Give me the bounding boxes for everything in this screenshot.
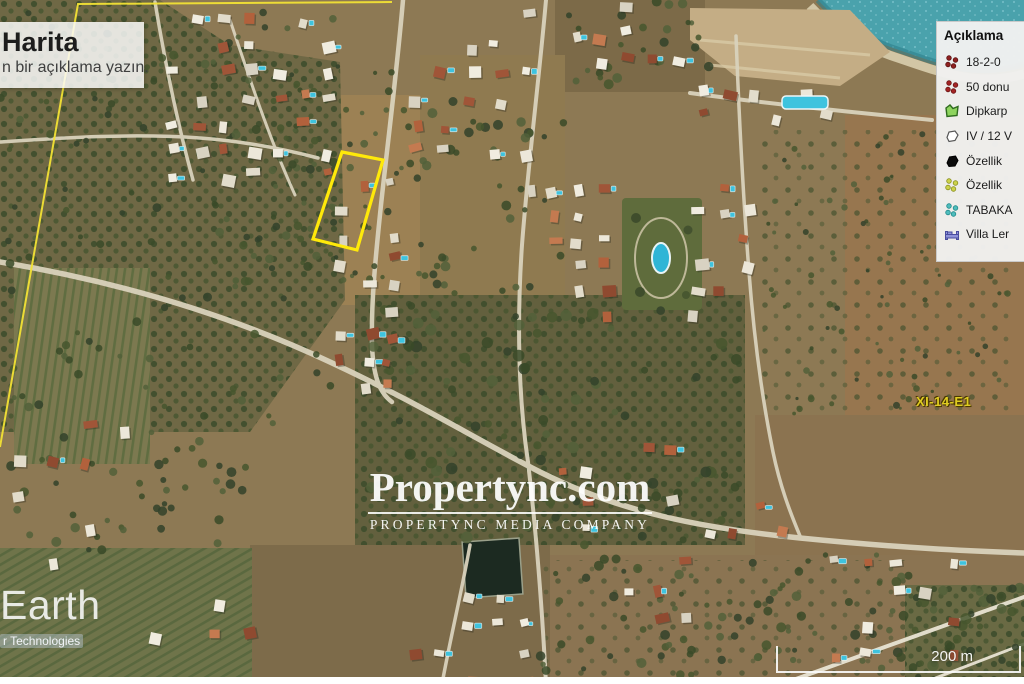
green-polygon-icon xyxy=(944,103,960,119)
legend-panel: Açıklama 18-2-0 50 donuDipkarpIV / 12 VÖ… xyxy=(936,21,1024,262)
scale-bar-label: 200 m xyxy=(931,648,973,665)
legend-item-0[interactable]: 18-2-0 xyxy=(944,50,1024,75)
cluster-dots-icon xyxy=(944,202,960,218)
legend-item-label: Villa Ler xyxy=(966,227,1009,241)
map-subtitle: n bir açıklama yazın. xyxy=(2,59,138,77)
parcel-code-label: XI-14-E1 xyxy=(916,394,971,409)
legend-item-4[interactable]: Özellik xyxy=(944,148,1024,173)
bottom-margin-strip xyxy=(0,677,1024,684)
legend-item-label: 50 donu xyxy=(966,80,1009,94)
white-polygon-icon xyxy=(944,128,960,144)
legend-item-3[interactable]: IV / 12 V xyxy=(944,124,1024,149)
beach-pool xyxy=(782,96,828,109)
cluster-dots-icon xyxy=(944,79,960,95)
legend-item-5[interactable]: Özellik xyxy=(944,173,1024,198)
legend-item-6[interactable]: TABAKA xyxy=(944,198,1024,223)
legend-item-label: 18-2-0 xyxy=(966,55,1001,69)
legend-item-label: Özellik xyxy=(966,154,1002,168)
cluster-dots-icon xyxy=(944,177,960,193)
legend-item-label: Dipkarp xyxy=(966,104,1007,118)
scale-bar: 200 m xyxy=(776,646,1021,673)
black-polygon-icon xyxy=(944,153,960,169)
map-viewport: Harita n bir açıklama yazın. Açıklama 18… xyxy=(0,0,1024,684)
cluster-dots-icon xyxy=(944,54,960,70)
legend-item-2[interactable]: Dipkarp xyxy=(944,99,1024,124)
legend-item-7[interactable]: Villa Ler xyxy=(944,222,1024,247)
map-title-box[interactable]: Harita n bir açıklama yazın. xyxy=(0,22,144,88)
legend-item-label: IV / 12 V xyxy=(966,129,1012,143)
park-complex xyxy=(622,198,702,310)
map-title: Harita xyxy=(2,28,138,56)
legend-item-label: TABAKA xyxy=(966,203,1012,217)
legend-item-label: Özellik xyxy=(966,178,1002,192)
legend-item-1[interactable]: 50 donu xyxy=(944,75,1024,100)
legend-title: Açıklama xyxy=(944,28,1024,43)
bed-icon xyxy=(944,226,960,242)
satellite-map-canvas[interactable] xyxy=(0,0,1024,684)
